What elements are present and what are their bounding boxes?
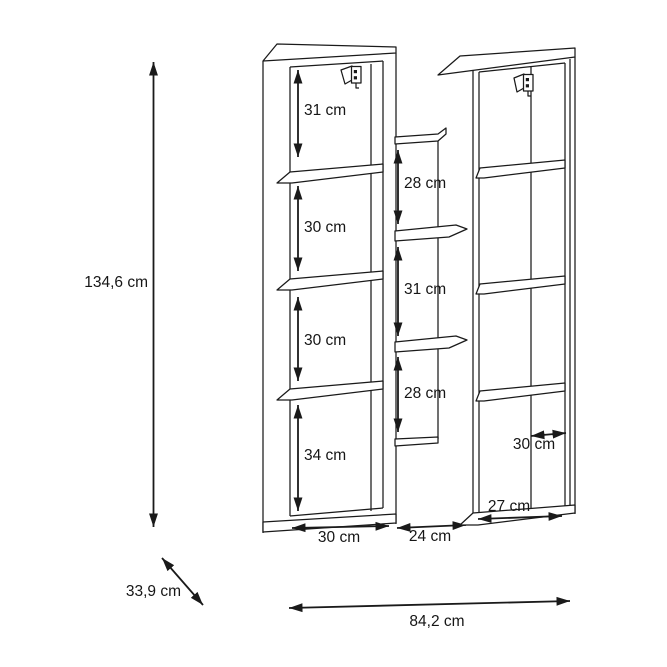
left-column-shelf-2 xyxy=(277,271,383,290)
overall-depth-label: 33,9 cm xyxy=(126,583,181,600)
middle-compartment-3-label: 28 cm xyxy=(404,385,446,402)
middle-section: 28 cm 31 cm 28 cm 24 cm xyxy=(395,128,467,545)
middle-shelf-1 xyxy=(395,225,467,241)
left-compartment-2-label: 30 cm xyxy=(304,219,346,236)
middle-shelf-2 xyxy=(395,336,467,352)
left-base-width-label: 30 cm xyxy=(318,529,360,546)
wall-bracket-icon xyxy=(514,74,533,96)
left-column-shelf-1 xyxy=(277,164,383,183)
diagram-canvas: 31 cm 30 cm 30 cm 34 cm 30 cm 28 cm 31 c… xyxy=(0,0,667,667)
left-column-interior-bottom-edge xyxy=(290,508,383,516)
left-compartment-4-label: 34 cm xyxy=(304,447,346,464)
left-compartment-3-label: 30 cm xyxy=(304,332,346,349)
right-column: 30 cm 27 cm xyxy=(438,48,575,525)
right-column-shelf-1 xyxy=(476,160,565,178)
left-column-top-panel xyxy=(263,44,396,61)
left-compartment-1-label: 31 cm xyxy=(304,102,346,119)
overall-height-label: 134,6 cm xyxy=(84,274,148,291)
left-column: 31 cm 30 cm 30 cm 34 cm 30 cm xyxy=(263,44,396,546)
wall-bracket-icon xyxy=(341,66,361,88)
middle-compartment-2-label: 31 cm xyxy=(404,281,446,298)
right-column-shelf-2 xyxy=(476,276,565,294)
middle-panel-bottom-edge xyxy=(395,437,438,446)
right-column-shelf-3 xyxy=(476,383,565,401)
right-inner-width-label: 30 cm xyxy=(513,436,555,453)
right-column-top-panel xyxy=(438,48,575,75)
left-column-interior-top-edge xyxy=(290,61,383,67)
right-base-width-label: 27 cm xyxy=(488,498,530,515)
overall-width-label: 84,2 cm xyxy=(409,613,464,630)
overall-width-arrow xyxy=(289,601,570,608)
furniture-dimension-diagram: 31 cm 30 cm 30 cm 34 cm 30 cm 28 cm 31 c… xyxy=(0,0,667,667)
middle-base-width-label: 24 cm xyxy=(409,528,451,545)
left-column-shelf-3 xyxy=(277,381,383,400)
middle-compartment-1-label: 28 cm xyxy=(404,175,446,192)
